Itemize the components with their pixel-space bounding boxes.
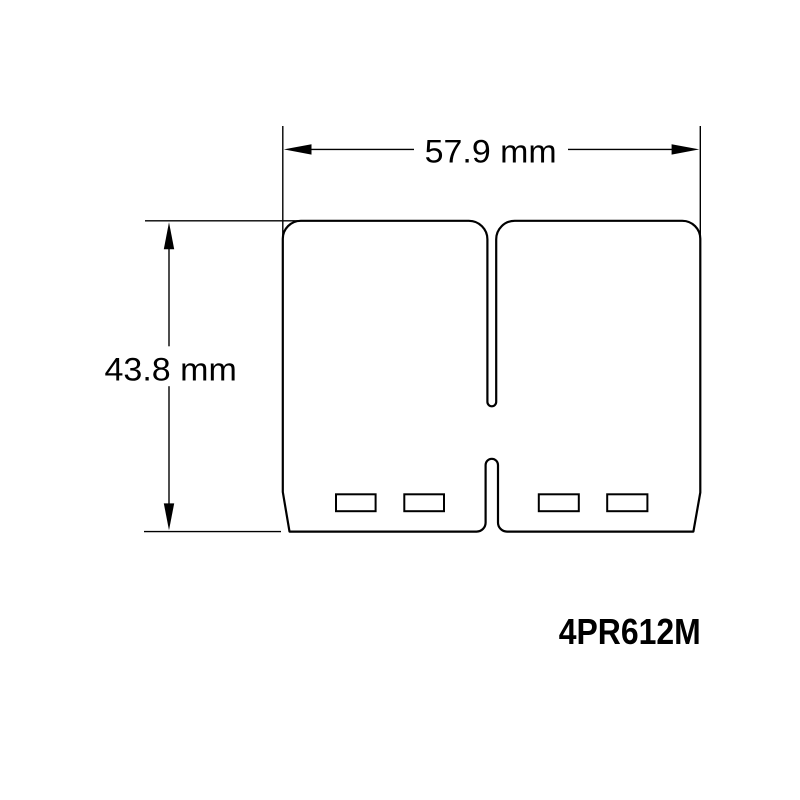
- svg-text:4PR612M: 4PR612M: [559, 611, 701, 652]
- svg-text:57.9 mm: 57.9 mm: [425, 134, 557, 170]
- svg-text:43.8 mm: 43.8 mm: [105, 352, 237, 388]
